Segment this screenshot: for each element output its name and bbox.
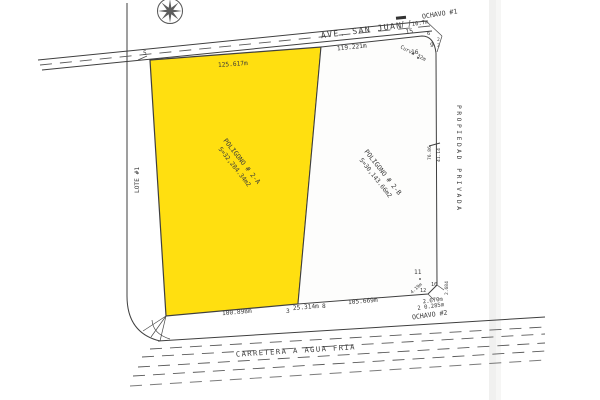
dim-bottom-mid: 25.314m xyxy=(293,303,320,312)
highway-label: CARRETERA A AGUA FRIA xyxy=(236,342,357,358)
parcel-2a-polygon xyxy=(150,47,321,316)
point-9a: 2 xyxy=(437,37,440,43)
point-3: 3 xyxy=(286,308,290,315)
point-8: 8 xyxy=(322,303,326,310)
dim-bottom-b: 105.669m xyxy=(348,297,379,307)
point-9: 9 xyxy=(430,42,434,49)
survey-map-svg: AVE. SAN JUAN OCHAVO #1 POLIGONO # 2-A S… xyxy=(0,0,600,400)
survey-plat-scan: AVE. SAN JUAN OCHAVO #1 POLIGONO # 2-A S… xyxy=(0,0,600,400)
dim-bottom-a: 100.898m xyxy=(222,308,253,318)
point-15: 15 xyxy=(405,28,414,36)
point-10: 10 xyxy=(431,282,437,288)
point-9b: 3 xyxy=(437,43,440,49)
avenue-label: AVE. SAN JUAN xyxy=(320,20,403,40)
dim-2-684: 2.684 xyxy=(444,281,450,295)
dim-east-lower: 41.14 xyxy=(436,148,442,162)
point-6: 6 xyxy=(427,31,430,37)
lote-1-label: LOTE #1 xyxy=(134,167,141,193)
propiedad-privada-label: PROPIEDAD PRIVADA xyxy=(455,105,462,213)
compass-rose-icon xyxy=(158,0,183,24)
corner-hatch-lines xyxy=(143,316,170,341)
road-mark xyxy=(396,17,406,18)
dim-east-upper: 76.86 xyxy=(427,146,433,160)
point-12: 12 xyxy=(420,288,426,294)
point-11: 11 xyxy=(414,269,422,276)
scan-edge-shadow xyxy=(489,0,496,400)
scan-edge-shadow-light xyxy=(496,0,501,400)
point-11-dot xyxy=(419,278,421,280)
